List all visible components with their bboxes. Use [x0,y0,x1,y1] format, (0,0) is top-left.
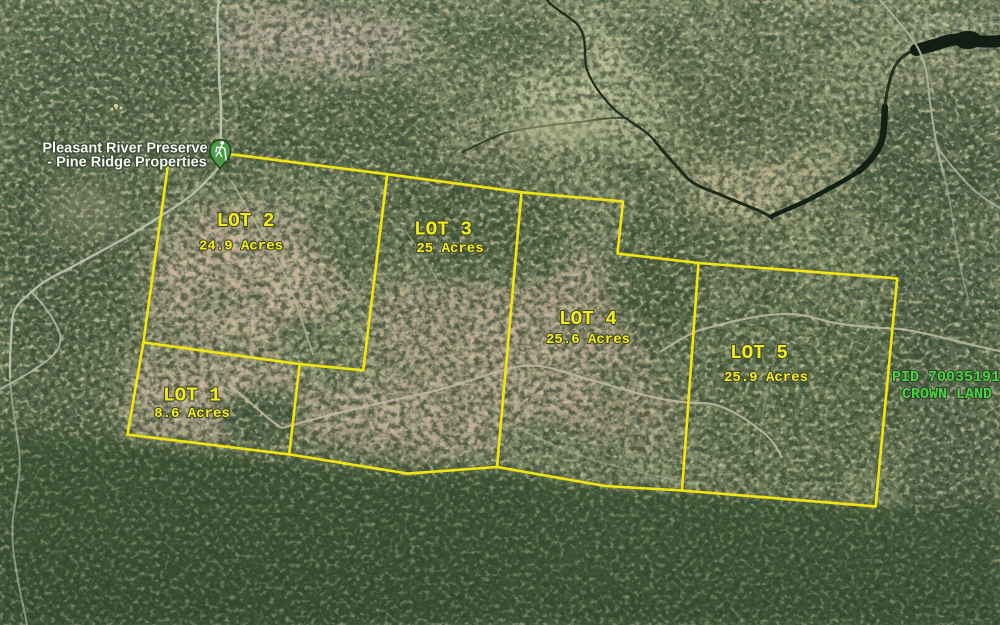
svg-text:LOT 4: LOT 4 [559,308,617,330]
svg-text:25 Acres: 25 Acres [416,241,483,257]
svg-text:LOT 3: LOT 3 [414,219,472,241]
svg-text:- Pine Ridge Properties: - Pine Ridge Properties [47,155,207,171]
svg-text:25.9 Acres: 25.9 Acres [724,370,808,386]
svg-text:25.6 Acres: 25.6 Acres [546,332,630,348]
svg-text:8.6 Acres: 8.6 Acres [154,406,230,422]
svg-text:PID 70035191: PID 70035191 [892,369,1000,386]
svg-text:24.9 Acres: 24.9 Acres [199,239,283,255]
svg-text:NSCRR: NSCRR [912,9,1000,36]
svg-text:LOT 1: LOT 1 [163,385,221,407]
svg-text:CROWN LAND: CROWN LAND [902,386,992,403]
svg-text:LOT 2: LOT 2 [217,210,275,232]
svg-text:LOT 5: LOT 5 [730,342,788,364]
